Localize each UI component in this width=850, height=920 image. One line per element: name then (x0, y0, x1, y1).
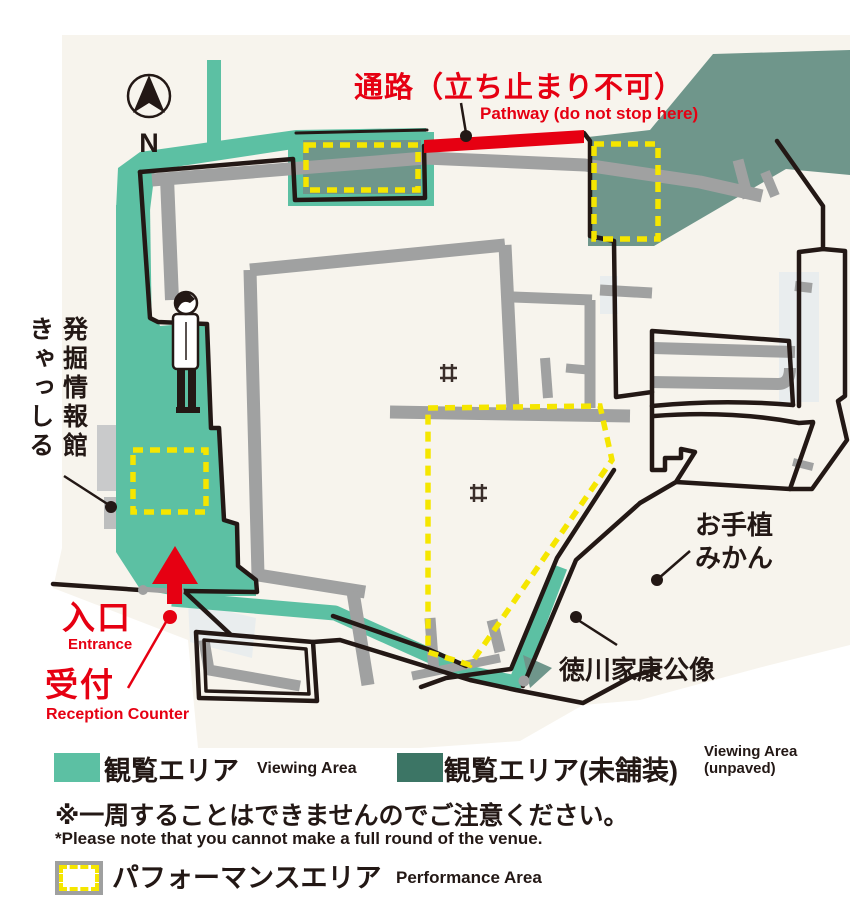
legend-unpaved-en-line2: (unpaved) (704, 760, 797, 777)
entrance-label-jp: 入口 (62, 591, 132, 639)
pathway-label-jp: 通路（立ち止まり不可） (354, 64, 684, 106)
legend-unpaved-label-en: Viewing Area (unpaved) (704, 743, 797, 778)
mikan-dot (651, 574, 663, 586)
legend-viewing-label-jp: 観覧エリア (104, 749, 239, 788)
reception-label-jp: 受付 (45, 658, 115, 706)
museum-dot (105, 501, 117, 513)
south-gate-dot (519, 676, 530, 687)
reception-label-en: Reception Counter (46, 706, 189, 724)
entrance-label-en: Entrance (68, 636, 132, 653)
legend-unpaved-swatch (397, 753, 443, 782)
mikan-label-line2: みかん (695, 542, 773, 575)
venue-map: N 通路（立ち止まり不可） Pathway (do not stop here)… (0, 0, 850, 920)
pathway-dot (460, 130, 472, 142)
pathway-label-en: Pathway (do not stop here) (480, 104, 698, 124)
statue-label: 徳川家康公像 (559, 650, 715, 687)
legend-viewing-swatch (54, 753, 100, 782)
note-label-jp: ※一周することはできませんのでご注意ください。 (55, 796, 629, 832)
mikan-label-line1: お手植 (695, 509, 773, 542)
legend-performance-swatch (55, 861, 103, 895)
statue-dot (570, 611, 582, 623)
legend-unpaved-en-line1: Viewing Area (704, 743, 797, 760)
legend-performance-label-jp: パフォーマンスエリア (112, 856, 381, 895)
legend-unpaved-label-jp: 観覧エリア(未舗装) (444, 749, 678, 788)
legend-performance-swatch-dash (59, 865, 99, 891)
legend-viewing-label-en: Viewing Area (257, 760, 357, 778)
museum-label-line2: きゃっしる (22, 316, 56, 496)
museum-label-line1: 発掘情報館 (56, 316, 90, 496)
reception-dot (163, 610, 177, 624)
note-label-en: *Please note that you cannot make a full… (55, 829, 542, 849)
museum-label: 発掘情報館 きゃっしる (22, 316, 90, 496)
mikan-label: お手植 みかん (695, 509, 773, 574)
compass-north-label: N (139, 128, 159, 158)
legend-performance-label-en: Performance Area (396, 868, 542, 888)
